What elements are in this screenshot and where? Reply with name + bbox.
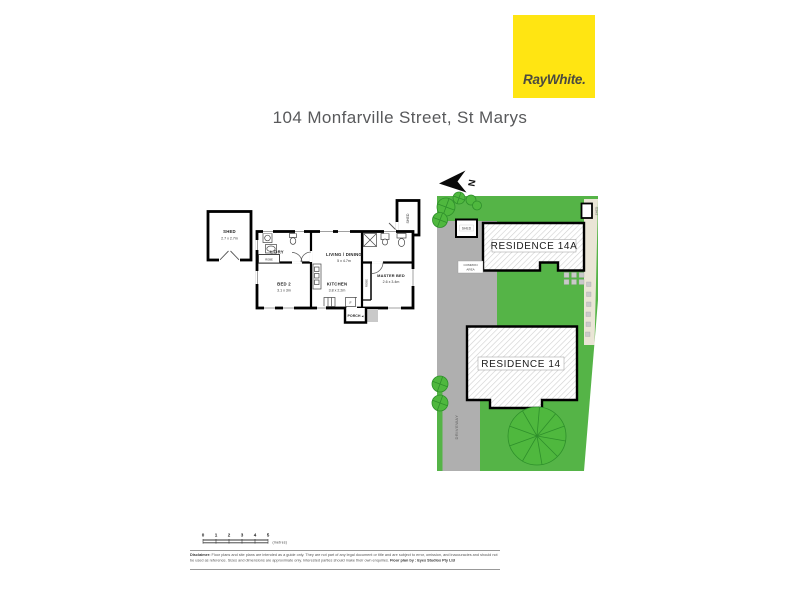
residence-14a-label: RESIDENCE 14A bbox=[491, 241, 578, 252]
residence-14a: RESIDENCE 14A bbox=[483, 223, 584, 271]
page-title: 104 Monfarville Street, St Marys bbox=[0, 108, 800, 128]
scale-tick: 2 bbox=[228, 533, 231, 538]
room-dims-master: 2.6 x 3.4m bbox=[383, 280, 400, 284]
room-dims-shed: 2.7 x 2.7m bbox=[221, 237, 238, 241]
floorplan-shed: SHED 2.7 x 2.7m bbox=[208, 212, 251, 262]
scalebar-svg: 0 1 2 3 4 5 (metres) bbox=[195, 528, 315, 550]
disclaimer-lead: Disclaimer: bbox=[190, 553, 210, 558]
tree-icon bbox=[432, 395, 448, 411]
robe-small-label: ROBE bbox=[265, 257, 273, 261]
robe-box: ROBE bbox=[259, 255, 280, 264]
tree-icon bbox=[453, 192, 465, 204]
north-label: N bbox=[466, 179, 478, 188]
raywhite-logo: RayWhite. bbox=[513, 15, 595, 98]
site-shed-right-label: SHED bbox=[595, 206, 599, 215]
room-label-living: LIVING / DINING bbox=[326, 252, 362, 257]
site-shed-left-label: SHED bbox=[462, 227, 472, 231]
tree-icon bbox=[508, 407, 566, 465]
room-label-bed2: BED 2 bbox=[277, 282, 291, 287]
flyer-page: RayWhite. 104 Monfarville Street, St Mar… bbox=[0, 0, 800, 600]
tree-icon bbox=[433, 213, 448, 228]
driveway-label: DRIVEWAY bbox=[454, 415, 459, 440]
room-label-porch: PORCH bbox=[348, 314, 361, 318]
raywhite-wordmark: RayWhite. bbox=[523, 72, 586, 87]
room-label-master: MASTER BED bbox=[377, 273, 405, 278]
disclaimer: Disclaimer: Floor plans and site plans a… bbox=[190, 552, 500, 563]
room-dims-kitchen: 3.8 x 2.2m bbox=[329, 289, 346, 293]
scale-tick: 1 bbox=[215, 533, 218, 538]
room-label-shed: SHED bbox=[223, 229, 236, 234]
residence-14: RESIDENCE 14 bbox=[467, 327, 577, 409]
scale-tick: 0 bbox=[202, 533, 205, 538]
disclaimer-credit: Floor plan by : Eyes Studios Pty Ltd bbox=[390, 558, 455, 563]
fridge-label: F bbox=[349, 301, 351, 305]
tree-icon bbox=[432, 376, 448, 392]
site-shed-left: SHED bbox=[456, 220, 477, 238]
room-dims-bed2: 3.1 x 3m bbox=[277, 289, 291, 293]
scale-tick: 5 bbox=[267, 533, 270, 538]
floorplan-porch: PORCH ◀ bbox=[345, 308, 378, 323]
divider bbox=[190, 569, 500, 570]
svg-text:AREA: AREA bbox=[466, 268, 474, 272]
scale-unit: (metres) bbox=[273, 540, 288, 544]
bathroom-fixtures-icon bbox=[364, 234, 407, 247]
scale-tick: 4 bbox=[254, 533, 257, 538]
robe-label: ROBE bbox=[365, 279, 369, 287]
residence-14-label: RESIDENCE 14 bbox=[481, 359, 560, 370]
divider bbox=[190, 550, 500, 551]
scale-bar-lines bbox=[203, 539, 268, 544]
tree-icon bbox=[473, 201, 482, 210]
scale-tick: 3 bbox=[241, 533, 244, 538]
svg-text:COMMON: COMMON bbox=[464, 263, 478, 267]
room-label-kitchen: KITCHEN bbox=[327, 282, 348, 287]
room-label-ldry: L'DRY bbox=[270, 250, 284, 255]
floorplan-svg: SHED 2.7 x 2.7m SHED bbox=[195, 190, 440, 335]
room-dims-living: 5 x 4.7m bbox=[337, 259, 351, 263]
siteplan-svg: N SHED SHED RESIDE bbox=[430, 160, 605, 480]
north-arrow-icon: N bbox=[439, 171, 479, 193]
room-label-shed-small: SHED bbox=[406, 213, 410, 223]
common-area-label: COMMON AREA bbox=[458, 261, 483, 273]
